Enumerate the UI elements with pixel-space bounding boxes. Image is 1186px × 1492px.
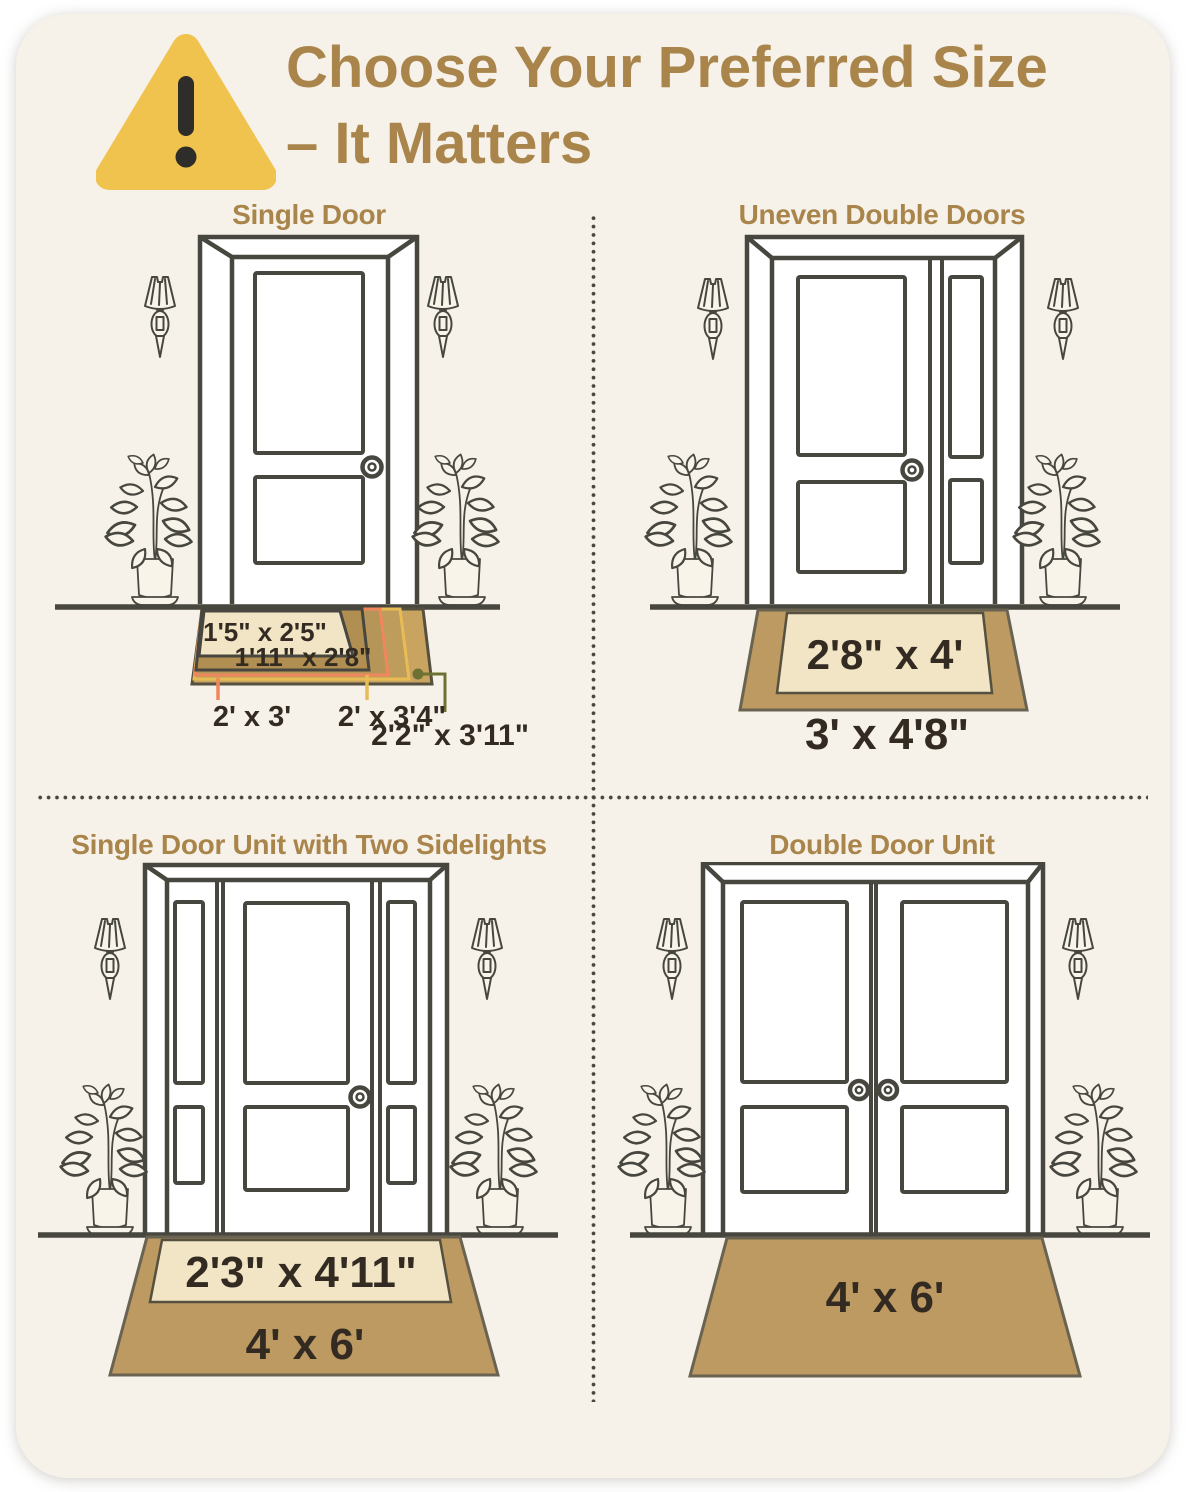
page-title: Choose Your Preferred Size – It Matters: [286, 30, 1146, 182]
quadrant-heading-uneven-double-doors: Uneven Double Doors: [598, 198, 1166, 232]
wall-sconce-icon: [472, 919, 502, 999]
quadrant-heading-double-door-unit: Double Door Unit: [598, 828, 1166, 862]
mat-size-label: 3' x 4'8": [805, 710, 969, 759]
quadrant-heading-single-door-two-sidelights: Single Door Unit with Two Sidelights: [20, 828, 598, 862]
wall-sconce-icon: [145, 277, 175, 357]
potted-plant-icon: [617, 1083, 705, 1235]
potted-plant-icon: [644, 453, 732, 605]
page-title-line1: Choose Your Preferred Size: [286, 30, 1146, 106]
single-door-two-sidelights-scene: 2'3" x 4'11" 4' x 6': [20, 862, 598, 1452]
wall-sconce-icon: [1063, 919, 1093, 999]
uneven-double-doors-scene: 2'8" x 4' 3' x 4'8": [598, 232, 1166, 798]
exclamation-bar: [178, 76, 194, 136]
potted-plant-icon: [1012, 453, 1100, 605]
wall-sconce-icon: [1048, 279, 1078, 359]
potted-plant-icon: [59, 1083, 147, 1235]
potted-plant-icon: [449, 1083, 537, 1235]
double-door-unit-scene: 4' x 6': [598, 862, 1166, 1452]
mat-size-label: 2'8" x 4': [807, 631, 964, 678]
wall-sconce-icon: [657, 919, 687, 999]
potted-plant-icon: [104, 453, 192, 605]
potted-plant-icon: [1049, 1083, 1137, 1235]
mat-size-label: 2' x 3': [213, 701, 291, 733]
mat-size-label: 4' x 6': [246, 1320, 365, 1369]
mat-size-label: 4' x 6': [826, 1273, 945, 1322]
wall-sconce-icon: [95, 919, 125, 999]
mat-size-label: 2'2" x 3'11": [371, 719, 529, 752]
single-door-scene: 1'5" x 2'5" 1'11" x 2'8" 2' x 3' 2' x 3'…: [20, 232, 598, 798]
potted-plant-icon: [411, 453, 499, 605]
warning-triangle-icon: [96, 30, 276, 194]
mat-size-label: 2'3" x 4'11": [185, 1248, 417, 1297]
wall-sconce-icon: [428, 277, 458, 357]
door-frame: [200, 237, 417, 604]
door-frame: [145, 865, 447, 1235]
mat-size-label: 1'11" x 2'8": [235, 642, 372, 672]
page-title-line2: – It Matters: [286, 106, 1146, 182]
wall-sconce-icon: [698, 279, 728, 359]
quadrant-heading-single-door: Single Door: [20, 198, 598, 232]
leader-dot-olive: [413, 669, 424, 680]
exclamation-dot: [176, 147, 197, 168]
